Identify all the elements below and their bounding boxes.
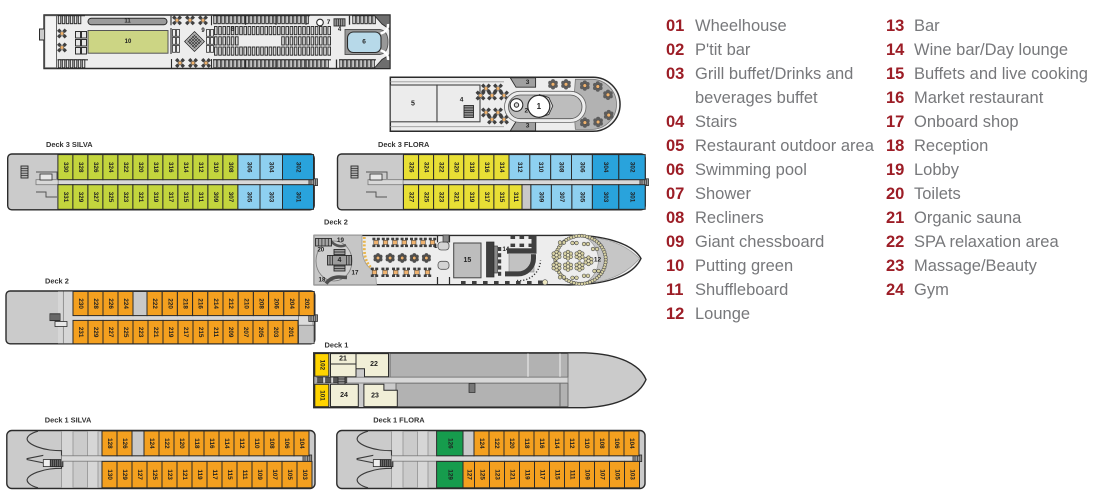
svg-text:Wheelhouse: Wheelhouse bbox=[695, 17, 787, 35]
svg-text:Bar: Bar bbox=[914, 17, 940, 35]
svg-text:Onboard shop: Onboard shop bbox=[914, 113, 1019, 131]
svg-text:307: 307 bbox=[558, 192, 565, 203]
svg-text:327: 327 bbox=[92, 192, 99, 203]
svg-text:325: 325 bbox=[107, 192, 114, 203]
svg-text:130: 130 bbox=[106, 469, 113, 480]
svg-text:23: 23 bbox=[886, 257, 904, 275]
svg-text:107: 107 bbox=[271, 469, 278, 480]
svg-text:306: 306 bbox=[246, 162, 253, 173]
svg-text:304: 304 bbox=[602, 162, 609, 173]
svg-text:P'tit bar: P'tit bar bbox=[695, 41, 751, 59]
svg-text:328: 328 bbox=[77, 162, 84, 173]
svg-text:12: 12 bbox=[594, 257, 602, 264]
svg-text:08: 08 bbox=[666, 209, 684, 227]
svg-text:201: 201 bbox=[287, 327, 294, 338]
svg-text:310: 310 bbox=[537, 162, 544, 173]
svg-text:322: 322 bbox=[122, 162, 129, 173]
svg-text:104: 104 bbox=[628, 438, 635, 449]
svg-text:04: 04 bbox=[666, 113, 685, 131]
svg-text:24: 24 bbox=[886, 281, 905, 299]
svg-text:309: 309 bbox=[212, 192, 219, 203]
svg-text:319: 319 bbox=[468, 192, 475, 203]
svg-text:207: 207 bbox=[242, 327, 249, 338]
svg-text:308: 308 bbox=[227, 162, 234, 173]
svg-text:Stairs: Stairs bbox=[695, 113, 737, 131]
svg-text:323: 323 bbox=[122, 192, 129, 203]
svg-text:115: 115 bbox=[554, 470, 561, 481]
svg-text:227: 227 bbox=[107, 327, 114, 338]
svg-text:129: 129 bbox=[121, 469, 128, 480]
svg-text:211: 211 bbox=[212, 327, 219, 338]
svg-text:13: 13 bbox=[886, 17, 904, 35]
svg-text:SPA relaxation area: SPA relaxation area bbox=[914, 233, 1059, 251]
svg-text:127: 127 bbox=[465, 469, 472, 480]
svg-text:Massage/Beauty: Massage/Beauty bbox=[914, 257, 1038, 275]
svg-text:120: 120 bbox=[508, 438, 515, 449]
svg-text:Shuffleboard: Shuffleboard bbox=[695, 281, 788, 299]
svg-text:307: 307 bbox=[227, 192, 234, 203]
svg-text:Swimming pool: Swimming pool bbox=[695, 161, 807, 179]
svg-text:226: 226 bbox=[107, 298, 114, 309]
svg-text:325: 325 bbox=[423, 192, 430, 203]
svg-text:212: 212 bbox=[227, 298, 234, 309]
svg-text:Wine bar/Day lounge: Wine bar/Day lounge bbox=[914, 41, 1068, 59]
svg-text:Shower: Shower bbox=[695, 185, 751, 203]
svg-text:109: 109 bbox=[256, 469, 263, 480]
svg-text:204: 204 bbox=[288, 298, 295, 309]
svg-text:331: 331 bbox=[62, 192, 69, 203]
svg-text:120: 120 bbox=[178, 438, 185, 449]
svg-text:107: 107 bbox=[599, 469, 606, 480]
svg-text:317: 317 bbox=[483, 192, 490, 203]
svg-text:330: 330 bbox=[62, 162, 69, 173]
svg-text:124: 124 bbox=[478, 438, 485, 449]
svg-text:123: 123 bbox=[494, 469, 501, 480]
svg-text:15: 15 bbox=[464, 257, 472, 264]
svg-text:230: 230 bbox=[77, 298, 84, 309]
svg-text:324: 324 bbox=[423, 162, 430, 173]
svg-text:109: 109 bbox=[584, 469, 591, 480]
svg-text:301: 301 bbox=[629, 192, 636, 203]
svg-text:317: 317 bbox=[167, 192, 174, 203]
svg-text:Putting green: Putting green bbox=[695, 257, 793, 275]
svg-text:16: 16 bbox=[886, 89, 904, 107]
svg-text:18: 18 bbox=[886, 137, 904, 155]
svg-text:20: 20 bbox=[317, 246, 324, 253]
svg-text:Restaurant outdoor area: Restaurant outdoor area bbox=[695, 137, 875, 155]
svg-text:311: 311 bbox=[512, 192, 519, 203]
svg-text:303: 303 bbox=[268, 192, 275, 203]
svg-text:12: 12 bbox=[666, 305, 684, 323]
svg-text:Recliners: Recliners bbox=[695, 209, 764, 227]
svg-text:01: 01 bbox=[666, 17, 684, 35]
svg-text:11: 11 bbox=[124, 19, 131, 25]
svg-text:103: 103 bbox=[629, 469, 636, 480]
svg-text:314: 314 bbox=[498, 162, 505, 173]
svg-text:Gym: Gym bbox=[914, 281, 949, 299]
svg-text:Deck 1 SILVA: Deck 1 SILVA bbox=[45, 416, 92, 425]
svg-text:127: 127 bbox=[136, 469, 143, 480]
svg-text:116: 116 bbox=[538, 438, 545, 449]
svg-text:326: 326 bbox=[92, 162, 99, 173]
svg-text:118: 118 bbox=[193, 438, 200, 449]
svg-text:125: 125 bbox=[151, 469, 158, 480]
svg-text:209: 209 bbox=[227, 327, 234, 338]
svg-text:20: 20 bbox=[886, 185, 904, 203]
svg-text:308: 308 bbox=[558, 162, 565, 173]
svg-text:126: 126 bbox=[121, 438, 128, 449]
svg-text:05: 05 bbox=[666, 137, 684, 155]
svg-text:Deck 2: Deck 2 bbox=[45, 277, 69, 286]
svg-text:202: 202 bbox=[303, 298, 310, 309]
svg-text:7: 7 bbox=[327, 19, 331, 26]
svg-text:312: 312 bbox=[516, 162, 523, 173]
svg-text:205: 205 bbox=[257, 327, 264, 338]
svg-text:321: 321 bbox=[453, 192, 460, 203]
svg-text:116: 116 bbox=[208, 438, 215, 449]
svg-text:19: 19 bbox=[337, 237, 344, 244]
svg-text:112: 112 bbox=[568, 438, 575, 449]
svg-text:Toilets: Toilets bbox=[914, 185, 961, 203]
svg-text:122: 122 bbox=[493, 438, 500, 449]
svg-text:225: 225 bbox=[122, 327, 129, 338]
svg-text:304: 304 bbox=[268, 162, 275, 173]
svg-text:Deck 2: Deck 2 bbox=[324, 218, 348, 227]
svg-text:229: 229 bbox=[92, 327, 99, 338]
svg-text:128: 128 bbox=[106, 438, 113, 449]
svg-text:106: 106 bbox=[613, 438, 620, 449]
svg-text:315: 315 bbox=[182, 192, 189, 203]
svg-text:110: 110 bbox=[253, 438, 260, 449]
svg-text:303: 303 bbox=[602, 192, 609, 203]
svg-text:23: 23 bbox=[371, 393, 379, 400]
svg-text:10: 10 bbox=[666, 257, 684, 275]
svg-text:216: 216 bbox=[197, 298, 204, 309]
svg-text:117: 117 bbox=[211, 470, 218, 481]
svg-text:Lobby: Lobby bbox=[914, 161, 960, 179]
svg-text:4: 4 bbox=[460, 97, 464, 104]
svg-text:19: 19 bbox=[886, 161, 904, 179]
svg-text:Reception: Reception bbox=[914, 137, 988, 155]
svg-text:17: 17 bbox=[886, 113, 904, 131]
svg-text:105: 105 bbox=[286, 469, 293, 480]
svg-text:302: 302 bbox=[295, 162, 302, 173]
svg-text:03: 03 bbox=[666, 65, 684, 83]
svg-text:22: 22 bbox=[370, 361, 378, 368]
svg-text:327: 327 bbox=[408, 192, 415, 203]
svg-text:24: 24 bbox=[340, 392, 348, 399]
svg-text:309: 309 bbox=[538, 192, 545, 203]
svg-text:316: 316 bbox=[483, 162, 490, 173]
svg-text:305: 305 bbox=[246, 192, 253, 203]
svg-text:316: 316 bbox=[167, 162, 174, 173]
svg-text:129: 129 bbox=[446, 469, 453, 480]
svg-text:1: 1 bbox=[537, 102, 542, 111]
svg-text:326: 326 bbox=[408, 162, 415, 173]
svg-text:07: 07 bbox=[666, 185, 684, 203]
svg-text:219: 219 bbox=[167, 327, 174, 338]
svg-text:Deck 3 SILVA: Deck 3 SILVA bbox=[46, 140, 93, 149]
svg-text:5: 5 bbox=[411, 101, 415, 108]
svg-text:Deck 3 FLORA: Deck 3 FLORA bbox=[378, 140, 430, 149]
svg-text:18: 18 bbox=[319, 277, 326, 284]
svg-text:329: 329 bbox=[77, 192, 84, 203]
svg-text:312: 312 bbox=[197, 162, 204, 173]
svg-text:122: 122 bbox=[163, 438, 170, 449]
svg-text:22: 22 bbox=[886, 233, 904, 251]
svg-text:119: 119 bbox=[524, 470, 531, 481]
svg-text:222: 222 bbox=[151, 298, 158, 309]
svg-text:Organic sauna: Organic sauna bbox=[914, 209, 1022, 227]
svg-text:322: 322 bbox=[438, 162, 445, 173]
svg-text:Giant chessboard: Giant chessboard bbox=[695, 233, 824, 251]
svg-text:10: 10 bbox=[125, 39, 132, 45]
svg-text:114: 114 bbox=[223, 438, 230, 449]
svg-text:11: 11 bbox=[666, 281, 683, 299]
svg-text:3: 3 bbox=[526, 123, 530, 130]
svg-text:105: 105 bbox=[614, 469, 621, 480]
svg-text:4: 4 bbox=[338, 257, 342, 264]
svg-text:beverages buffet: beverages buffet bbox=[695, 89, 818, 107]
svg-text:217: 217 bbox=[182, 327, 189, 338]
svg-text:319: 319 bbox=[152, 192, 159, 203]
svg-text:314: 314 bbox=[182, 162, 189, 173]
svg-text:224: 224 bbox=[122, 298, 129, 309]
svg-text:06: 06 bbox=[666, 161, 684, 179]
svg-text:324: 324 bbox=[107, 162, 114, 173]
svg-text:21: 21 bbox=[886, 209, 904, 227]
svg-text:111: 111 bbox=[241, 470, 248, 480]
svg-text:09: 09 bbox=[666, 233, 684, 251]
svg-text:Buffets and live cooking: Buffets and live cooking bbox=[914, 65, 1088, 83]
svg-text:21: 21 bbox=[339, 356, 347, 363]
svg-text:125: 125 bbox=[479, 469, 486, 480]
svg-text:3: 3 bbox=[526, 79, 530, 86]
svg-text:118: 118 bbox=[523, 438, 530, 449]
svg-text:218: 218 bbox=[182, 298, 189, 309]
svg-text:206: 206 bbox=[273, 298, 280, 309]
svg-text:104: 104 bbox=[298, 438, 305, 449]
svg-text:15: 15 bbox=[886, 65, 904, 83]
svg-text:102: 102 bbox=[318, 360, 325, 371]
svg-text:121: 121 bbox=[181, 469, 188, 480]
svg-text:306: 306 bbox=[579, 162, 586, 173]
svg-text:123: 123 bbox=[166, 469, 173, 480]
svg-text:119: 119 bbox=[196, 470, 203, 481]
svg-text:305: 305 bbox=[579, 192, 586, 203]
svg-text:221: 221 bbox=[152, 327, 159, 338]
svg-text:Deck 1 FLORA: Deck 1 FLORA bbox=[373, 416, 425, 425]
svg-text:223: 223 bbox=[137, 327, 144, 338]
svg-text:Deck 1: Deck 1 bbox=[325, 341, 349, 350]
svg-text:108: 108 bbox=[598, 438, 605, 449]
svg-text:02: 02 bbox=[666, 41, 684, 59]
svg-text:17: 17 bbox=[352, 269, 359, 276]
svg-text:220: 220 bbox=[166, 298, 173, 309]
svg-text:208: 208 bbox=[258, 298, 265, 309]
svg-text:124: 124 bbox=[148, 438, 155, 449]
svg-text:121: 121 bbox=[509, 469, 516, 480]
svg-text:Grill buffet/Drinks and: Grill buffet/Drinks and bbox=[695, 65, 853, 83]
svg-text:302: 302 bbox=[629, 162, 636, 173]
svg-text:111: 111 bbox=[569, 470, 576, 480]
svg-text:Market restaurant: Market restaurant bbox=[914, 89, 1044, 107]
svg-text:301: 301 bbox=[295, 192, 302, 203]
svg-text:108: 108 bbox=[268, 438, 275, 449]
svg-text:103: 103 bbox=[301, 469, 308, 480]
svg-text:214: 214 bbox=[212, 298, 219, 309]
svg-text:6: 6 bbox=[362, 39, 366, 46]
svg-text:106: 106 bbox=[283, 438, 290, 449]
svg-text:320: 320 bbox=[453, 162, 460, 173]
svg-text:114: 114 bbox=[553, 438, 560, 449]
svg-text:203: 203 bbox=[272, 327, 279, 338]
svg-text:126: 126 bbox=[446, 438, 453, 449]
svg-text:101: 101 bbox=[318, 390, 325, 401]
svg-text:112: 112 bbox=[238, 438, 245, 449]
svg-text:318: 318 bbox=[468, 162, 475, 173]
svg-text:311: 311 bbox=[197, 192, 204, 203]
svg-text:14: 14 bbox=[886, 41, 905, 59]
svg-text:2: 2 bbox=[524, 108, 528, 115]
svg-text:323: 323 bbox=[438, 192, 445, 203]
svg-text:210: 210 bbox=[242, 298, 249, 309]
svg-text:117: 117 bbox=[539, 470, 546, 481]
svg-text:310: 310 bbox=[212, 162, 219, 173]
svg-text:231: 231 bbox=[77, 327, 84, 338]
svg-text:320: 320 bbox=[137, 162, 144, 173]
svg-text:115: 115 bbox=[226, 470, 233, 481]
svg-text:315: 315 bbox=[498, 192, 505, 203]
svg-text:321: 321 bbox=[137, 192, 144, 203]
svg-text:228: 228 bbox=[92, 298, 99, 309]
svg-text:215: 215 bbox=[197, 327, 204, 338]
svg-text:318: 318 bbox=[152, 162, 159, 173]
svg-text:110: 110 bbox=[583, 438, 590, 449]
svg-text:Lounge: Lounge bbox=[695, 305, 750, 323]
